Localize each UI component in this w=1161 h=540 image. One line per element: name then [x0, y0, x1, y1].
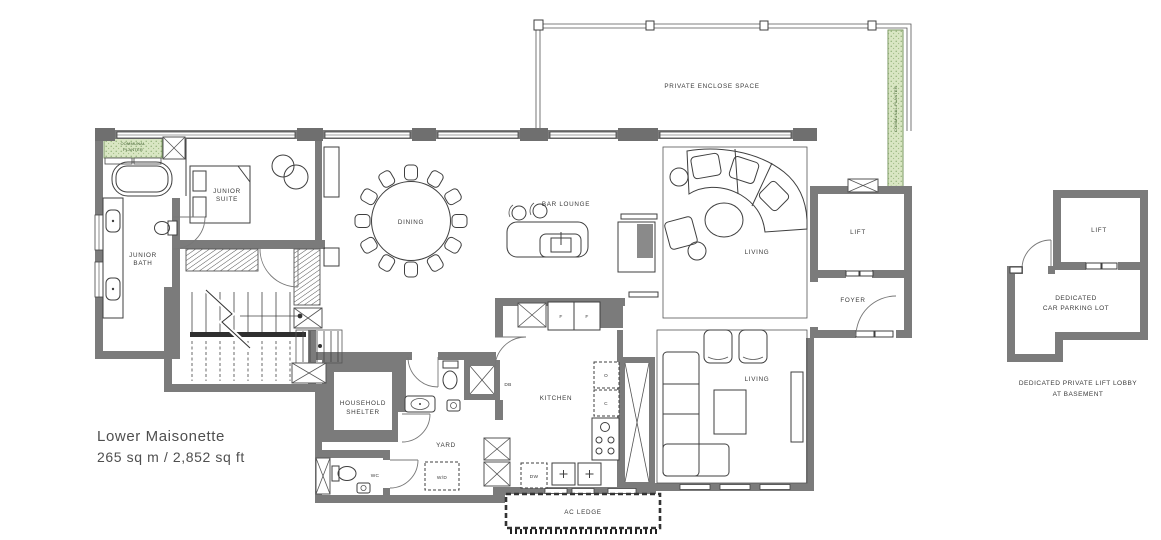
- label-dishwasher: DW: [530, 474, 539, 480]
- console-cabinet: [618, 214, 658, 297]
- lower-living-furniture: [657, 330, 807, 483]
- label-db: DB: [504, 382, 511, 388]
- label-junior-suite-2: SUITE: [216, 196, 238, 203]
- label-junior-bath-1: JUNIOR: [129, 252, 157, 259]
- label-fridge-1: F: [559, 314, 562, 320]
- label-ac-ledge: AC LEDGE: [564, 509, 601, 516]
- wc-door-gap: [383, 460, 390, 488]
- label-bar-lounge: BAR LOUNGE: [542, 201, 590, 208]
- label-communal-planter-strip: COMMUNAL PLANTER: [893, 86, 898, 132]
- basement-plan: [1007, 190, 1148, 362]
- plan-area: 265 sq m / 2,852 sq ft: [97, 449, 245, 465]
- label-basement-caption-1: DEDICATED PRIVATE LIFT LOBBY: [1019, 380, 1137, 387]
- label-wc: WC: [371, 473, 380, 479]
- db-shaft: [464, 360, 500, 400]
- label-washer-dryer: W/D: [437, 475, 447, 481]
- label-parking-1: DEDICATED: [1055, 295, 1097, 302]
- wardrobe: [186, 249, 258, 271]
- floor-plan-svg: PRIVATE ENCLOSE SPACE COMMUNAL PLANTER C…: [0, 0, 1161, 540]
- plan-title-block: Lower Maisonette 265 sq m / 2,852 sq ft: [97, 428, 245, 465]
- label-basement-caption-2: AT BASEMENT: [1053, 391, 1104, 398]
- label-foyer: FOYER: [840, 297, 865, 304]
- label-kitchen: KITCHEN: [540, 395, 573, 402]
- terrace-outline: [534, 20, 911, 131]
- label-fridge-2: F: [585, 314, 588, 320]
- label-cabinet-c: C: [604, 401, 608, 407]
- label-dining: DINING: [398, 219, 424, 226]
- label-yard: YARD: [436, 442, 456, 449]
- label-household-shelter-1: HOUSEHOLD: [340, 400, 386, 407]
- label-oven: O: [604, 373, 608, 379]
- label-junior-suite-1: JUNIOR: [213, 188, 241, 195]
- lift-foyer: [846, 271, 896, 337]
- label-junior-bath-2: BATH: [133, 260, 152, 267]
- shaft-boxes: [163, 137, 878, 494]
- window: [134, 158, 161, 164]
- label-private-enclose-space: PRIVATE ENCLOSE SPACE: [664, 83, 759, 90]
- label-living-upper: LIVING: [745, 249, 770, 256]
- label-living-lower: LIVING: [745, 376, 770, 383]
- plan-title: Lower Maisonette: [97, 428, 225, 445]
- label-communal-planter-1: COMMUNAL: [121, 141, 147, 146]
- label-lift: LIFT: [850, 229, 866, 236]
- label-communal-planter-2: PLANTER: [123, 147, 143, 152]
- upper-living-furniture: [663, 147, 807, 318]
- label-household-shelter-2: SHELTER: [346, 409, 379, 416]
- label-parking-2: CAR PARKING LOT: [1043, 305, 1109, 312]
- window: [105, 158, 132, 164]
- tall-shaft: [619, 357, 655, 488]
- household-shelter-door-gap: [398, 412, 406, 442]
- floor-plan-page: PRIVATE ENCLOSE SPACE COMMUNAL PLANTER C…: [0, 0, 1161, 540]
- bar-lounge-furniture: [507, 203, 588, 257]
- label-basement-lift: LIFT: [1091, 227, 1107, 234]
